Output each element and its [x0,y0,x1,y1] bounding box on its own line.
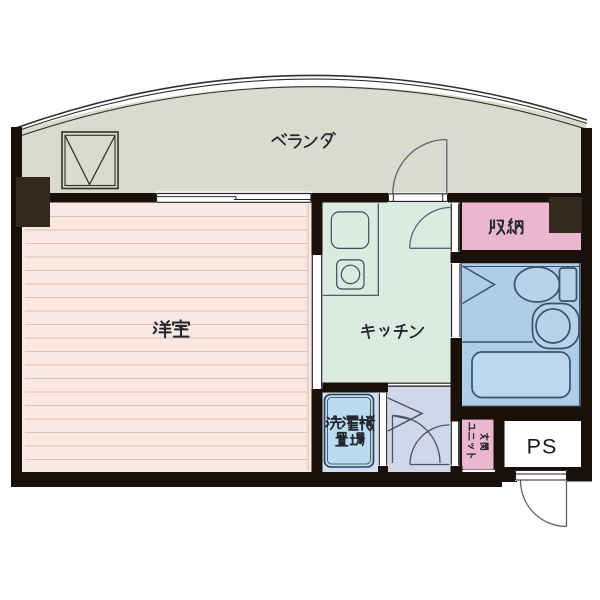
svg-text:PS: PS [527,435,558,459]
